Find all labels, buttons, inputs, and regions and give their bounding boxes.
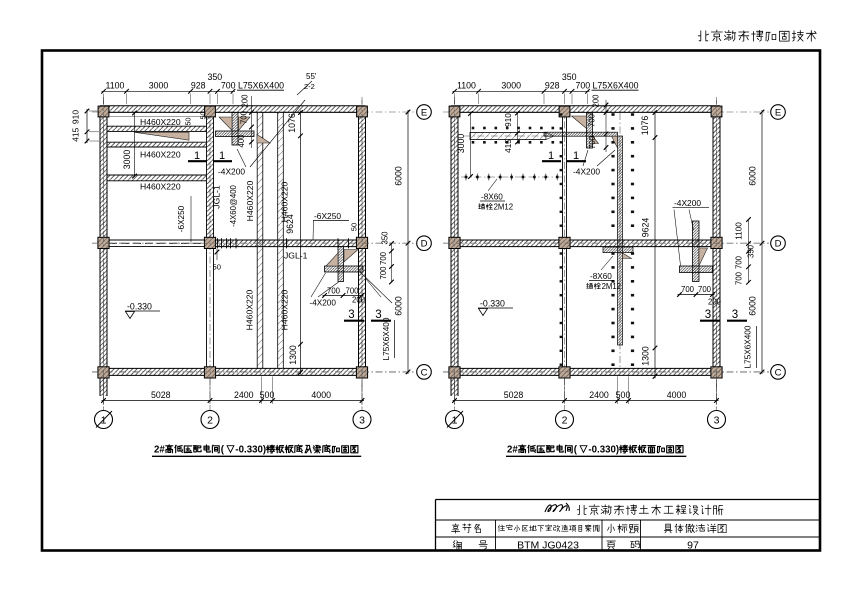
svg-text:415: 415 (504, 139, 513, 153)
svg-text:JGL-1: JGL-1 (284, 251, 308, 261)
svg-text:3: 3 (359, 414, 365, 426)
svg-text:2: 2 (562, 414, 568, 426)
svg-text:-8X60: -8X60 (590, 272, 612, 281)
svg-text:2400: 2400 (589, 390, 609, 400)
svg-text:97: 97 (687, 540, 699, 552)
svg-text:2400: 2400 (234, 390, 254, 400)
svg-text:6000: 6000 (394, 166, 404, 186)
svg-text:6000: 6000 (394, 296, 404, 316)
svg-text:3: 3 (348, 309, 354, 321)
svg-text:H460X220: H460X220 (140, 117, 181, 127)
svg-text:H460X220: H460X220 (245, 289, 255, 330)
svg-text:700: 700 (735, 271, 744, 285)
svg-text:200: 200 (592, 94, 601, 108)
svg-text:-8X60: -8X60 (481, 193, 503, 202)
svg-text:3000: 3000 (501, 81, 521, 91)
svg-text:-4X200: -4X200 (674, 198, 701, 208)
svg-text:-4X60@400: -4X60@400 (229, 184, 238, 226)
svg-text:3: 3 (375, 309, 381, 321)
svg-text:3: 3 (714, 414, 720, 426)
svg-text:700: 700 (221, 81, 236, 91)
svg-text:-0.330: -0.330 (127, 302, 152, 312)
svg-text:6000: 6000 (748, 296, 758, 316)
svg-text:50: 50 (199, 112, 208, 120)
svg-text:L75X6X400: L75X6X400 (382, 317, 391, 360)
svg-text:55': 55' (306, 72, 317, 81)
svg-text:C: C (421, 367, 428, 378)
svg-text:(: ( (574, 445, 580, 456)
svg-text:3000: 3000 (149, 81, 169, 91)
svg-text:415: 415 (71, 127, 81, 141)
svg-text:-6X250: -6X250 (314, 211, 341, 221)
svg-text:-4X200: -4X200 (573, 167, 600, 177)
svg-text:400: 400 (237, 134, 246, 148)
svg-text:700: 700 (575, 81, 590, 91)
svg-text:5028: 5028 (151, 390, 171, 400)
svg-text:2M12: 2M12 (494, 203, 514, 212)
svg-text:2#: 2# (154, 445, 165, 456)
svg-text:L75X6X400: L75X6X400 (238, 81, 284, 91)
svg-text:2: 2 (207, 414, 213, 426)
svg-text:1300: 1300 (641, 346, 651, 366)
svg-text:350: 350 (562, 72, 577, 82)
svg-text:6000: 6000 (748, 166, 758, 186)
svg-text:350: 350 (381, 231, 390, 245)
svg-text:3: 3 (732, 309, 738, 321)
svg-text:D: D (421, 239, 428, 250)
svg-text:500: 500 (616, 390, 631, 400)
svg-text:H460X220: H460X220 (245, 180, 255, 221)
svg-text:700: 700 (735, 255, 744, 269)
svg-text:-4X200: -4X200 (218, 167, 245, 177)
svg-text:E: E (421, 107, 427, 118)
svg-text:200: 200 (241, 94, 250, 108)
svg-text:L75X6X400: L75X6X400 (744, 325, 753, 368)
svg-text:3000: 3000 (456, 134, 466, 154)
svg-text:H460X220: H460X220 (280, 181, 290, 222)
svg-text:700: 700 (588, 113, 597, 127)
svg-text:E: E (775, 107, 781, 118)
svg-text:50: 50 (213, 263, 221, 272)
svg-text:H460X220: H460X220 (280, 289, 290, 330)
svg-text:200: 200 (708, 298, 722, 307)
svg-text:200: 200 (352, 296, 366, 305)
svg-text:H460X220: H460X220 (140, 150, 181, 160)
svg-text:700: 700 (379, 266, 388, 280)
svg-text:700: 700 (379, 251, 388, 265)
svg-text:928: 928 (545, 81, 560, 91)
svg-text:928: 928 (191, 81, 206, 91)
svg-text:700: 700 (327, 287, 341, 296)
svg-text:5028: 5028 (504, 390, 524, 400)
svg-text:-4X200: -4X200 (310, 299, 337, 308)
svg-text:700: 700 (588, 135, 597, 149)
svg-text:910: 910 (71, 110, 81, 124)
svg-text:-0.330): -0.330) (235, 445, 266, 456)
svg-text:2M12: 2M12 (602, 282, 622, 291)
svg-text:-0.330): -0.330) (588, 445, 619, 456)
svg-text:1100: 1100 (735, 222, 744, 240)
svg-text:4000: 4000 (311, 390, 331, 400)
svg-text:JGL-1: JGL-1 (212, 185, 222, 209)
svg-text:700: 700 (681, 285, 695, 294)
svg-text:2#: 2# (507, 445, 518, 456)
svg-text:C: C (775, 367, 782, 378)
svg-text:(: ( (221, 445, 227, 456)
svg-text:1300: 1300 (288, 345, 298, 365)
svg-text:L75X6X400: L75X6X400 (593, 81, 639, 91)
svg-text:700: 700 (345, 287, 359, 296)
svg-text:9624: 9624 (641, 218, 651, 238)
svg-text:50: 50 (184, 118, 193, 126)
svg-text:1100: 1100 (106, 81, 125, 91)
svg-text:4000: 4000 (667, 390, 687, 400)
svg-text:700: 700 (698, 285, 712, 294)
svg-text:D: D (775, 239, 782, 250)
svg-text:350: 350 (747, 244, 756, 258)
svg-text:H460X220: H460X220 (140, 182, 181, 192)
svg-text:-0.330: -0.330 (480, 299, 505, 309)
svg-text:BTM JG0423: BTM JG0423 (517, 540, 579, 552)
svg-text:3000: 3000 (122, 150, 132, 170)
svg-text:700: 700 (240, 110, 249, 124)
svg-text:1076: 1076 (640, 116, 650, 136)
svg-text:-6X250: -6X250 (177, 205, 186, 232)
svg-text:3: 3 (705, 309, 711, 321)
svg-text:50: 50 (350, 223, 359, 231)
svg-text:910: 910 (504, 113, 513, 127)
svg-text:1100: 1100 (457, 81, 476, 91)
svg-text:500: 500 (260, 390, 275, 400)
